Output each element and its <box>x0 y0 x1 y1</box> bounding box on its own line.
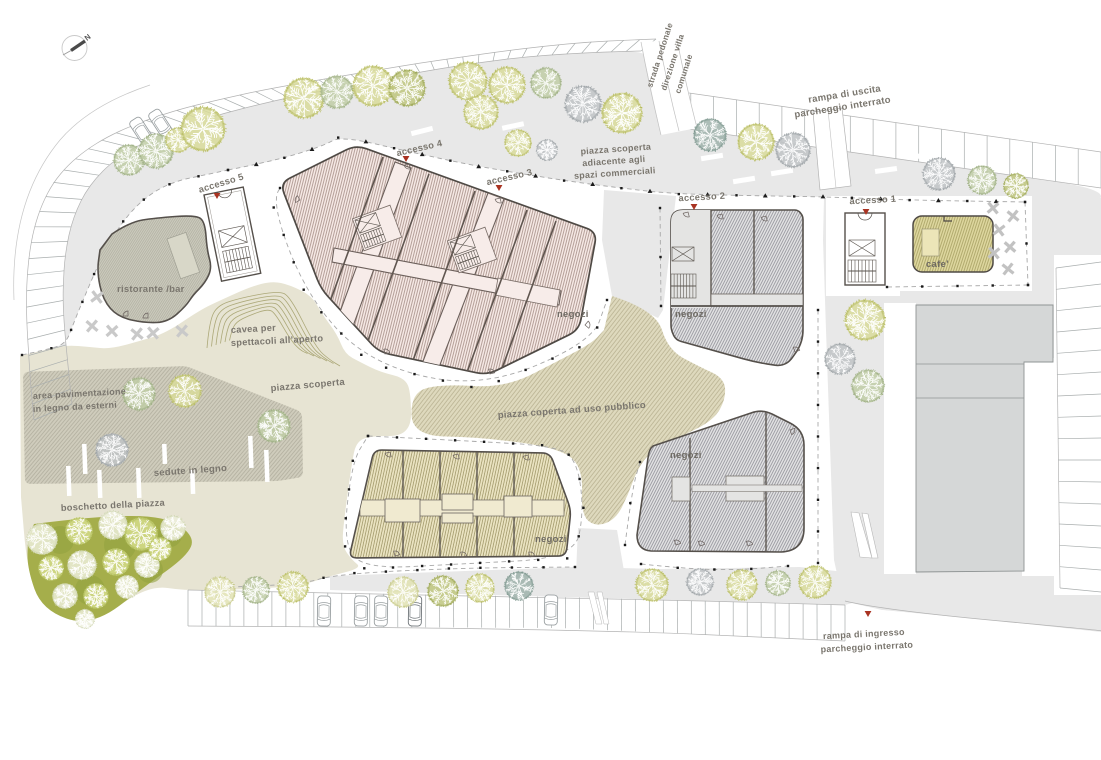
svg-text:negozi: negozi <box>557 309 589 320</box>
svg-text:cafe’: cafe’ <box>926 259 949 270</box>
svg-text:ristorante /bar: ristorante /bar <box>117 284 185 295</box>
svg-text:negozi: negozi <box>670 450 702 461</box>
svg-text:negozi: negozi <box>675 309 707 320</box>
svg-text:negozi: negozi <box>535 534 567 545</box>
